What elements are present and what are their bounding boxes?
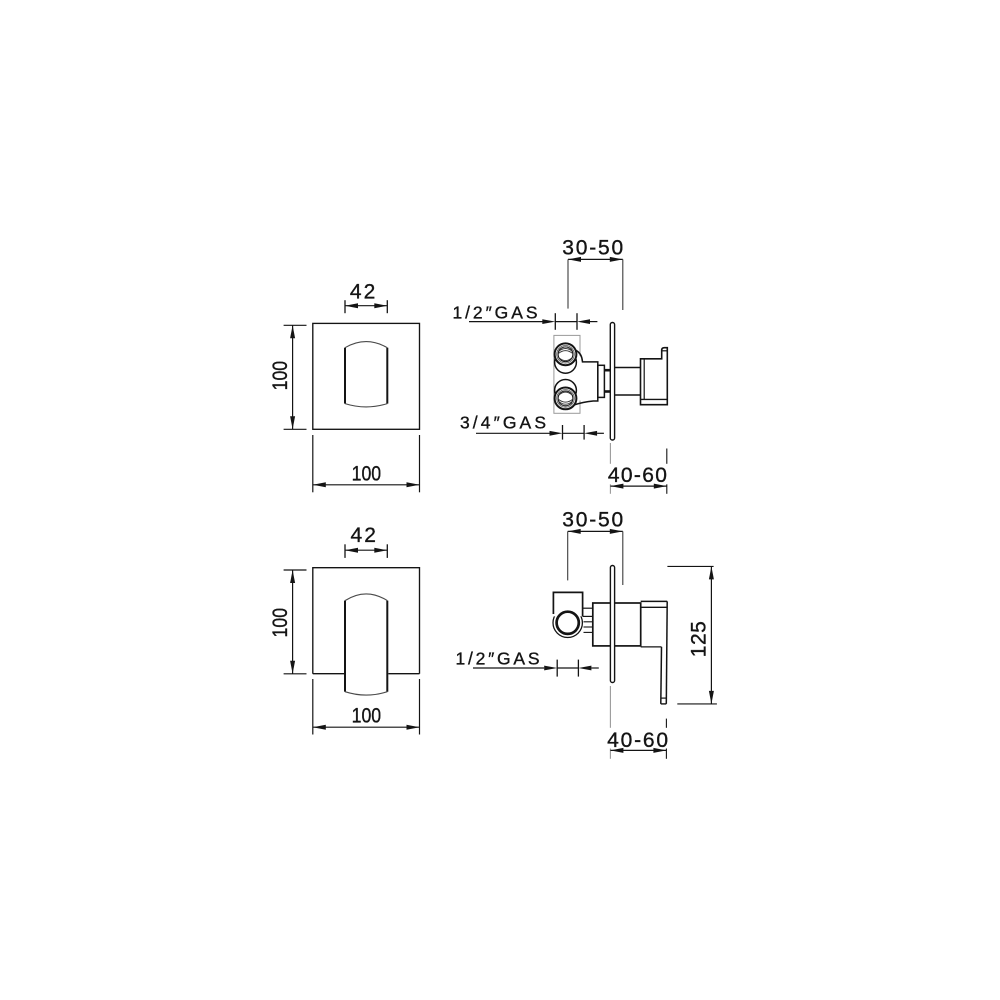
svg-text:42: 42	[350, 281, 376, 304]
svg-text:30-50: 30-50	[562, 237, 623, 260]
svg-text:100: 100	[352, 463, 382, 486]
svg-text:42: 42	[350, 524, 376, 547]
svg-text:100: 100	[269, 361, 292, 391]
svg-text:40-60: 40-60	[608, 464, 667, 487]
svg-text:100: 100	[269, 608, 292, 638]
svg-text:40-60: 40-60	[607, 729, 668, 752]
svg-text:3/4″GAS: 3/4″GAS	[460, 413, 546, 433]
svg-text:1/2″GAS: 1/2″GAS	[456, 648, 540, 668]
svg-text:30-50: 30-50	[562, 509, 623, 532]
svg-text:125: 125	[687, 621, 710, 657]
svg-text:100: 100	[352, 705, 382, 728]
svg-text:1/2″GAS: 1/2″GAS	[453, 303, 538, 323]
